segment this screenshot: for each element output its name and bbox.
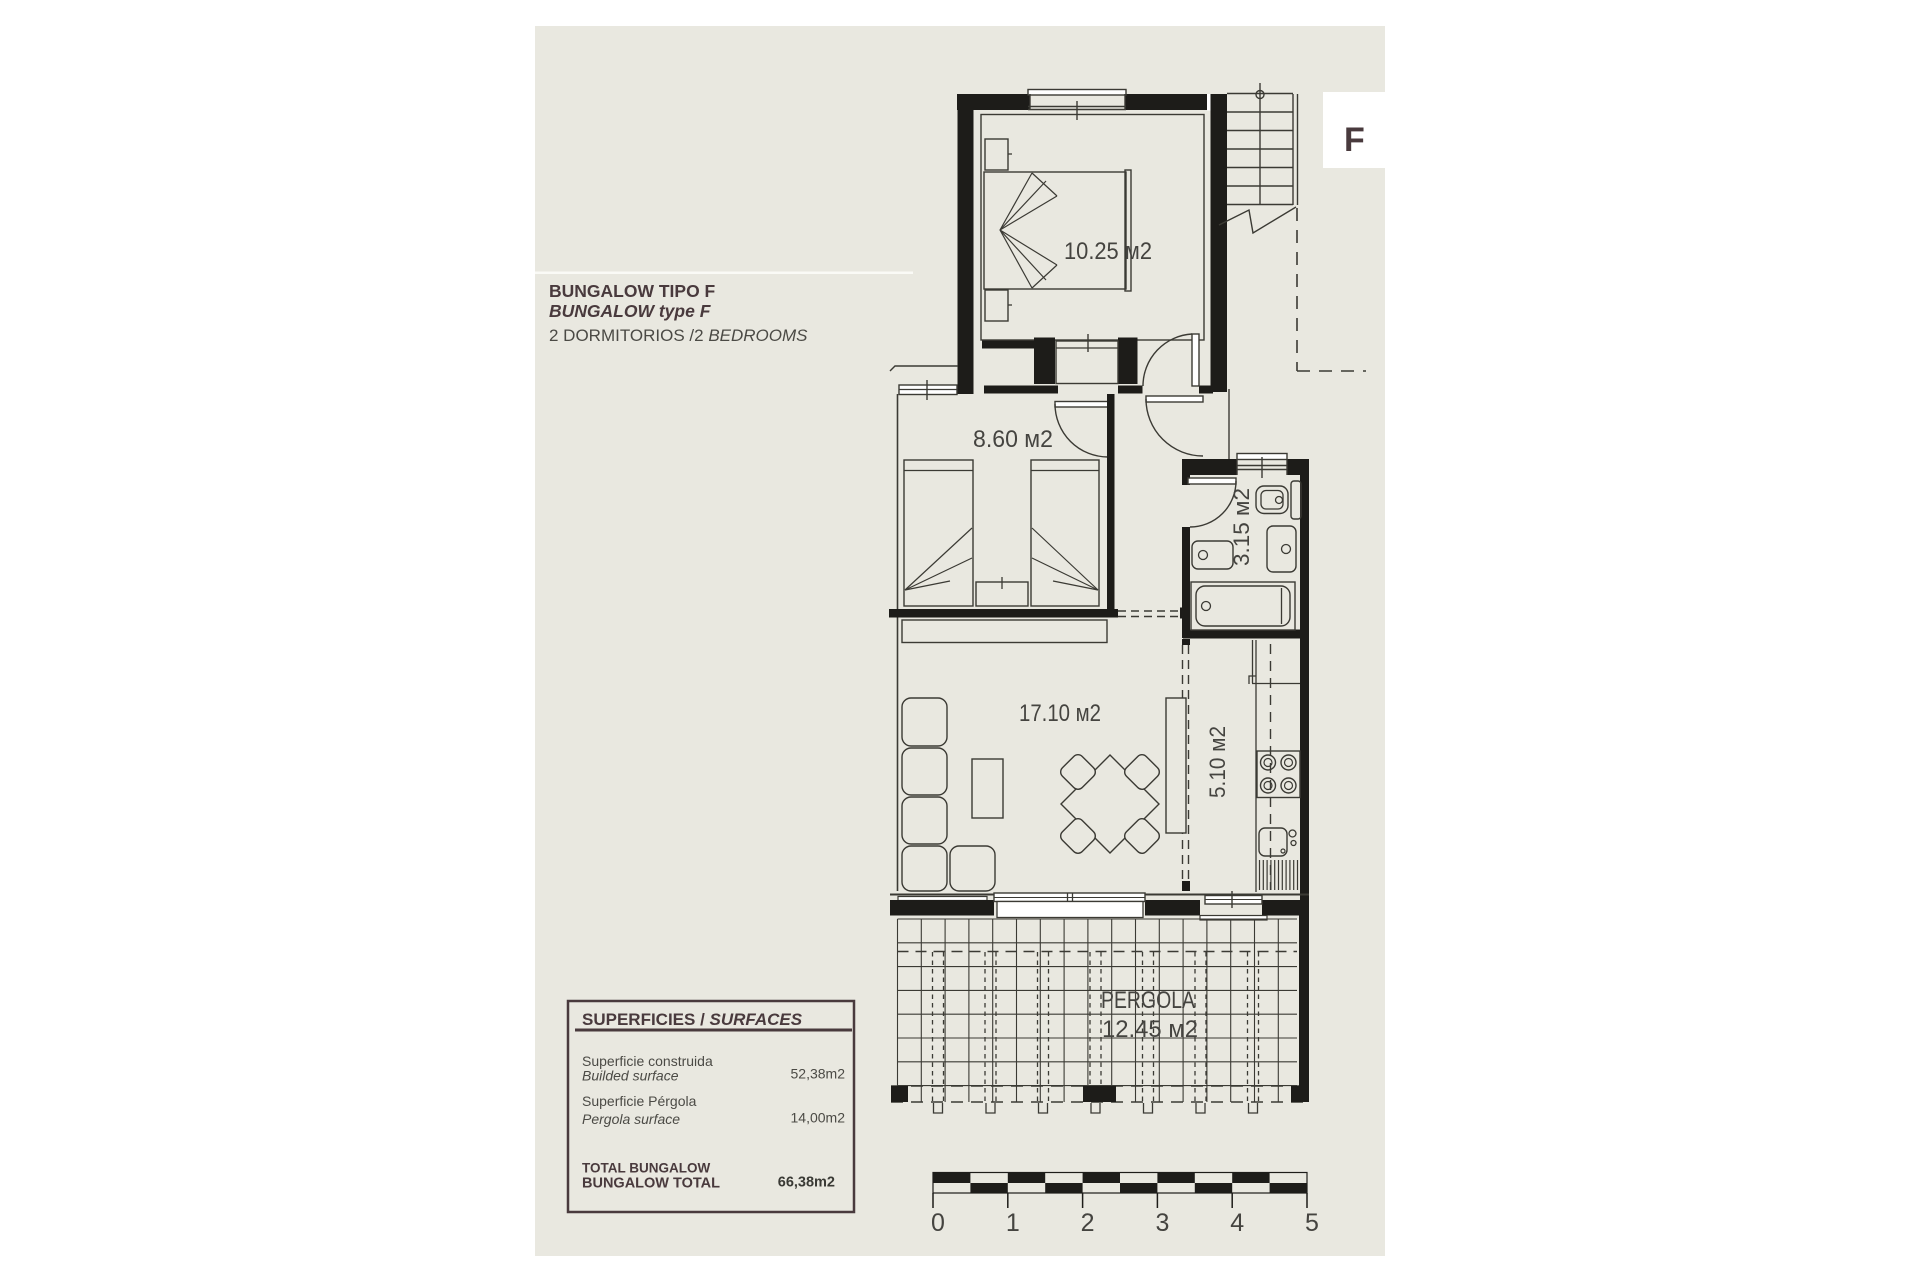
svg-text:8.60 м2: 8.60 м2 — [973, 426, 1053, 453]
svg-text:F: F — [1344, 121, 1365, 159]
svg-text:3.15 м2: 3.15 м2 — [1229, 488, 1254, 566]
svg-text:BUNGALOW type F: BUNGALOW type F — [549, 301, 712, 321]
svg-text:PERGOLA: PERGOLA — [1101, 987, 1195, 1014]
svg-text:17.10 м2: 17.10 м2 — [1019, 700, 1101, 727]
svg-text:66,38m2: 66,38m2 — [778, 1175, 835, 1191]
svg-text:5.10 м2: 5.10 м2 — [1205, 726, 1230, 798]
svg-text:TOTAL BUNGALOW: TOTAL BUNGALOW — [582, 1161, 710, 1176]
svg-text:52,38m2: 52,38m2 — [791, 1066, 846, 1082]
svg-text:5: 5 — [1305, 1209, 1319, 1237]
svg-text:BUNGALOW TIPO F: BUNGALOW TIPO F — [549, 281, 716, 301]
svg-text:1: 1 — [1006, 1209, 1020, 1237]
svg-text:0: 0 — [931, 1209, 945, 1237]
svg-text:12.45 м2: 12.45 м2 — [1102, 1016, 1198, 1043]
svg-text:10.25 м2: 10.25 м2 — [1064, 238, 1152, 265]
svg-text:SUPERFICIES / SURFACES: SUPERFICIES / SURFACES — [582, 1010, 803, 1029]
svg-text:Pergola surface: Pergola surface — [582, 1111, 680, 1127]
svg-text:Superficie Pérgola: Superficie Pérgola — [582, 1093, 697, 1109]
svg-text:2 DORMITORIOS /2 BEDROOMS: 2 DORMITORIOS /2 BEDROOMS — [549, 326, 808, 345]
svg-text:3: 3 — [1155, 1209, 1169, 1237]
svg-text:4: 4 — [1230, 1209, 1244, 1237]
svg-text:14,00m2: 14,00m2 — [791, 1110, 846, 1126]
svg-text:2: 2 — [1081, 1209, 1095, 1237]
svg-text:Builded surface: Builded surface — [582, 1068, 679, 1084]
svg-text:BUNGALOW TOTAL: BUNGALOW TOTAL — [582, 1176, 720, 1192]
